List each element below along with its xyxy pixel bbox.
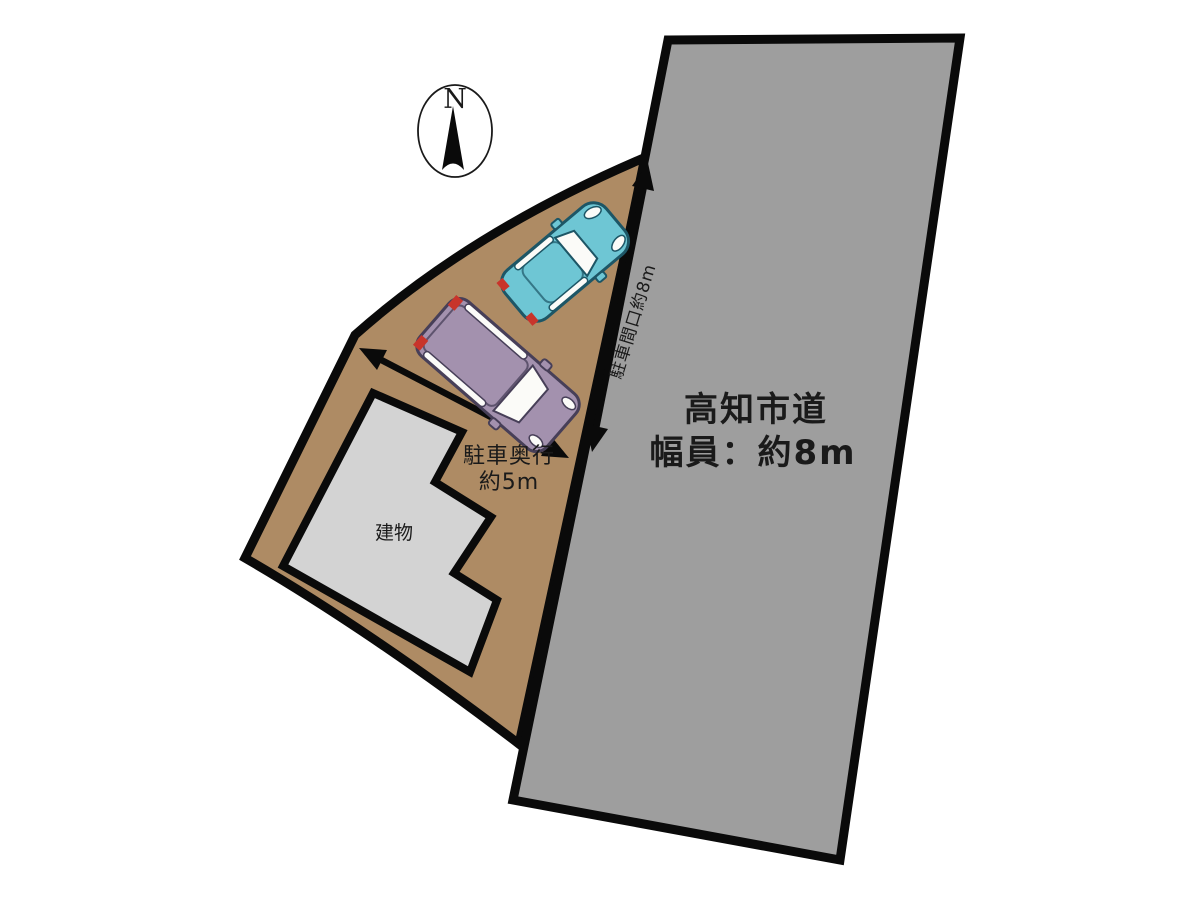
road-width-label: 幅員：約8m (649, 433, 856, 473)
compass-n-label: N (443, 84, 467, 115)
building-label: 建物 (375, 522, 413, 544)
depth-label-line2: 約5m (479, 470, 539, 495)
site-plan-diagram: 駐車間口約8m 建物 (0, 0, 1200, 900)
site-plan-page: 駐車間口約8m 建物 (0, 0, 1200, 900)
compass: N (418, 84, 492, 177)
depth-label-line1: 駐車奥行 (463, 444, 555, 469)
road-name-label: 高知市道 (684, 390, 828, 430)
